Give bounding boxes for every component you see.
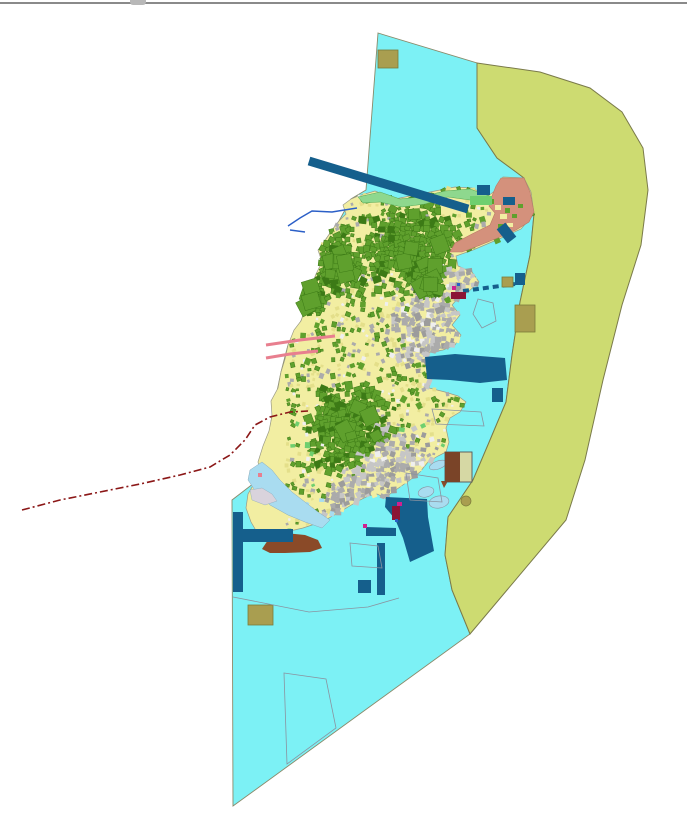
yellow-speck — [431, 423, 434, 426]
vegetation-patch — [336, 388, 341, 392]
white-speck — [390, 273, 392, 275]
vegetation-speck — [316, 312, 320, 316]
urban-speck — [432, 453, 435, 456]
yellow-speck — [307, 334, 310, 337]
urban-speck — [481, 221, 486, 227]
vegetation-speck — [311, 458, 314, 461]
urban-speck — [345, 468, 348, 471]
yellow-speck — [287, 468, 291, 472]
zone-rect-navy-east-small — [515, 273, 525, 285]
urban-patch — [374, 451, 381, 458]
yellow-speck — [311, 364, 314, 366]
urban-patch — [411, 452, 416, 457]
white-speck — [302, 469, 306, 473]
vegetation-speck — [346, 293, 352, 299]
vegetation-speck — [361, 469, 364, 472]
urban-patch — [386, 489, 390, 493]
green-speck — [407, 403, 410, 407]
vegetation-speck — [301, 364, 305, 368]
urban-patch — [391, 487, 397, 494]
yellow-speck — [430, 432, 434, 436]
vegetation-patch — [349, 452, 356, 458]
urban-patch — [395, 348, 400, 352]
urban-speck — [307, 373, 310, 377]
vegetation-speck — [435, 404, 438, 408]
urban-speck — [392, 384, 395, 386]
urban-speck — [425, 413, 429, 416]
white-speck — [451, 405, 453, 407]
zone-rect-navy-south-square — [358, 580, 371, 593]
vegetation-speck — [296, 389, 299, 391]
vegetation-speck — [382, 219, 385, 222]
urban-speck — [391, 324, 394, 327]
yellow-speck — [392, 342, 397, 348]
urban-speck — [382, 279, 386, 283]
stream-line-2 — [290, 230, 305, 232]
vegetation-speck — [391, 379, 394, 381]
vegetation-speck — [296, 395, 300, 398]
yellow-speck — [368, 204, 372, 207]
white-speck — [343, 374, 346, 377]
vegetation-speck — [448, 399, 451, 402]
vegetation-speck — [387, 374, 392, 378]
vegetation-speck — [365, 283, 369, 287]
green-speck — [290, 444, 295, 448]
urban-patch — [401, 333, 406, 339]
urban-speck — [355, 222, 359, 227]
zone-rect-navy-southeast — [492, 388, 503, 402]
urban-patch — [331, 487, 335, 491]
vegetation-patch — [370, 266, 376, 271]
urban-patch — [405, 352, 411, 359]
zone-rect-khaki-east-large — [515, 305, 535, 332]
vegetation-patch — [358, 216, 366, 224]
shallow-speck — [319, 498, 324, 502]
urban-speck — [290, 378, 294, 382]
urban-patch — [410, 441, 415, 445]
vegetation-speck — [320, 349, 323, 352]
pier-mark — [258, 473, 262, 477]
vegetation-speck — [441, 438, 445, 442]
harbor-basin-east — [425, 354, 507, 383]
vegetation-speck — [337, 327, 341, 331]
green-speck — [466, 213, 472, 218]
vegetation-speck — [308, 494, 311, 497]
urban-patch — [420, 307, 424, 311]
map-canvas[interactable] — [0, 0, 687, 821]
vegetation-speck — [330, 373, 335, 379]
green-speck — [285, 374, 289, 378]
yellow-speck — [405, 384, 408, 387]
vegetation-speck — [322, 326, 327, 331]
urban-patch — [466, 282, 470, 285]
vegetation-speck — [470, 227, 474, 231]
vegetation-patch — [425, 246, 431, 252]
yellow-speck — [286, 442, 289, 446]
white-speck — [385, 302, 389, 306]
vegetation-patch — [403, 290, 409, 296]
green-speck — [399, 427, 405, 432]
urban-patch — [361, 481, 367, 486]
urban-patch — [459, 271, 466, 276]
khaki-islet — [461, 496, 471, 506]
vegetation-patch — [356, 238, 361, 243]
urban-speck — [352, 349, 355, 352]
vegetation-speck — [308, 368, 312, 371]
vegetation-speck — [290, 344, 294, 348]
urban-patch — [374, 481, 379, 486]
urban-speck — [304, 478, 309, 483]
white-speck — [380, 297, 384, 300]
urban-patch — [415, 326, 421, 331]
urban-patch — [421, 314, 425, 318]
urban-patch — [432, 327, 436, 331]
vegetation-speck — [365, 343, 368, 346]
vegetation-speck — [292, 486, 297, 491]
vegetation-patch-large — [404, 241, 419, 256]
vegetation-speck — [299, 489, 304, 495]
vegetation-speck — [404, 306, 409, 312]
yellow-speck — [392, 422, 395, 425]
vegetation-speck — [402, 376, 407, 380]
vegetation-patch — [345, 237, 350, 242]
vegetation-speck — [367, 274, 370, 276]
vegetation-speck — [296, 461, 301, 467]
white-speck — [396, 399, 400, 403]
zone-rect-khaki-east-small — [502, 277, 513, 287]
vegetation-patch — [384, 291, 391, 297]
green-speck — [300, 333, 306, 339]
urban-speck — [437, 439, 440, 442]
vegetation-speck — [350, 233, 354, 237]
vegetation-speck — [375, 336, 379, 341]
bordered-facility-rect-left — [445, 452, 460, 482]
urban-patch — [472, 278, 477, 282]
vegetation-speck — [336, 339, 340, 343]
white-speck — [316, 318, 319, 321]
urban-patch — [335, 508, 341, 515]
vegetation-patch — [450, 225, 456, 231]
yellow-speck — [350, 288, 354, 293]
vegetation-speck — [391, 393, 394, 396]
vegetation-patch — [366, 393, 372, 399]
vegetation-speck — [390, 349, 394, 353]
vegetation-speck — [290, 362, 295, 368]
green-speck — [351, 354, 354, 358]
pier-mark — [363, 524, 367, 528]
vegetation-speck — [331, 358, 334, 362]
pier-mark — [397, 502, 402, 506]
urban-patch — [435, 337, 442, 343]
vegetation-speck — [326, 482, 332, 487]
yellow-speck — [418, 374, 421, 377]
green-speck — [346, 386, 350, 392]
zone-rect-navy-pier-bar — [377, 543, 385, 595]
vegetation-speck — [350, 299, 355, 305]
urban-patch — [366, 483, 371, 487]
zone-rect-khaki-southwest — [248, 605, 273, 625]
vegetation-speck — [460, 403, 465, 407]
white-speck — [305, 432, 309, 436]
vegetation-speck — [308, 388, 311, 391]
yellow-speck — [316, 373, 319, 376]
green-speck — [360, 301, 366, 307]
zone-rect-navy-west-arm — [243, 529, 293, 542]
white-speck — [351, 295, 353, 297]
vegetation-speck — [450, 397, 453, 400]
vegetation-patch — [414, 225, 421, 231]
urban-patch — [340, 493, 345, 499]
urban-patch — [394, 327, 400, 332]
yellow-speck — [310, 492, 314, 495]
urban-speck — [338, 374, 341, 377]
yellow-speck — [285, 463, 289, 467]
urban-patch — [449, 343, 455, 348]
white-speck — [293, 392, 296, 395]
reclamation-speck — [505, 208, 510, 213]
urban-patch — [424, 320, 430, 326]
vegetation-speck — [286, 387, 289, 391]
vegetation-patch-large — [408, 209, 420, 220]
urban-patch — [420, 447, 426, 452]
yellow-speck — [297, 452, 301, 456]
yellow-speck — [337, 377, 341, 382]
urban-patch — [395, 447, 399, 451]
urban-patch — [425, 442, 430, 447]
white-speck — [301, 367, 304, 369]
yellow-speck — [417, 382, 422, 388]
urban-patch — [389, 440, 395, 447]
zone-rect-north-khaki — [378, 50, 398, 68]
pier-mark — [392, 506, 400, 520]
vegetation-speck — [392, 371, 397, 376]
yellow-speck — [340, 342, 343, 345]
vegetation-speck — [287, 437, 291, 440]
pier-mark — [395, 519, 398, 522]
vegetation-speck — [296, 522, 299, 524]
map-window — [0, 0, 687, 821]
shallow-speck — [329, 511, 334, 517]
urban-patch — [411, 462, 415, 467]
urban-patch — [392, 434, 396, 437]
vegetation-patch — [306, 426, 312, 433]
urban-speck — [446, 392, 450, 397]
pier-mark — [452, 286, 456, 290]
urban-patch — [401, 353, 405, 358]
yellow-speck — [306, 489, 310, 492]
reclamation-speck — [512, 214, 517, 218]
vegetation-patch — [378, 227, 385, 233]
yellow-speck — [425, 422, 430, 426]
vegetation-speck — [350, 227, 354, 232]
yellow-speck — [457, 214, 461, 218]
vegetation-speck — [301, 377, 305, 382]
green-speck — [415, 362, 421, 368]
urban-patch — [397, 483, 401, 487]
vegetation-patch-large — [423, 277, 437, 291]
urban-patch — [402, 347, 406, 350]
yellow-speck — [311, 373, 314, 376]
reclamation-speck — [500, 214, 507, 219]
vegetation-speck — [372, 292, 376, 296]
vegetation-patch — [371, 223, 377, 228]
vegetation-speck — [401, 424, 405, 427]
vegetation-speck — [331, 321, 336, 327]
yellow-speck — [417, 409, 420, 412]
urban-patch — [425, 297, 429, 301]
urban-speck — [406, 412, 409, 415]
yellow-speck — [375, 204, 378, 207]
zone-rect-navy-west-bar — [233, 512, 243, 592]
vegetation-speck — [380, 328, 384, 332]
vegetation-patch — [345, 392, 350, 397]
vegetation-patch — [334, 457, 341, 463]
white-speck — [367, 279, 370, 282]
urban-speck — [487, 212, 491, 216]
vegetation-speck — [343, 354, 346, 357]
urban-speck — [367, 372, 371, 376]
vegetation-patch — [340, 292, 345, 296]
urban-speck — [346, 217, 349, 220]
yellow-speck — [432, 387, 436, 391]
zone-rect-green-north — [470, 196, 492, 205]
quay-south — [366, 527, 396, 536]
urban-speck — [331, 383, 336, 388]
pier-mark — [457, 283, 460, 286]
zone-rect-navy-north — [477, 185, 490, 195]
vegetation-patch-large — [325, 269, 336, 279]
vegetation-speck — [416, 398, 420, 401]
reclamation-speck — [495, 205, 501, 210]
vegetation-speck — [360, 308, 365, 312]
urban-patch — [441, 336, 446, 341]
green-speck — [345, 333, 349, 336]
urban-patch — [461, 284, 465, 289]
vegetation-speck — [336, 348, 340, 353]
white-speck — [302, 422, 306, 426]
urban-patch — [409, 447, 415, 452]
vegetation-patch — [423, 225, 430, 231]
vegetation-speck — [375, 228, 378, 231]
green-speck — [481, 207, 485, 210]
vegetation-patch-large — [336, 253, 354, 272]
vegetation-speck — [423, 365, 426, 367]
urban-patch — [424, 301, 430, 308]
vegetation-patch-large — [396, 252, 413, 270]
zone-blob-navy-salmon — [503, 197, 515, 205]
vegetation-speck — [391, 398, 394, 401]
urban-patch — [413, 331, 419, 338]
vegetation-patch — [344, 446, 350, 452]
green-speck — [410, 293, 413, 296]
pier-mark — [451, 292, 466, 299]
reclamation-speck — [518, 204, 523, 208]
white-speck — [306, 457, 310, 461]
urban-patch — [384, 468, 389, 472]
vegetation-speck — [287, 402, 290, 406]
